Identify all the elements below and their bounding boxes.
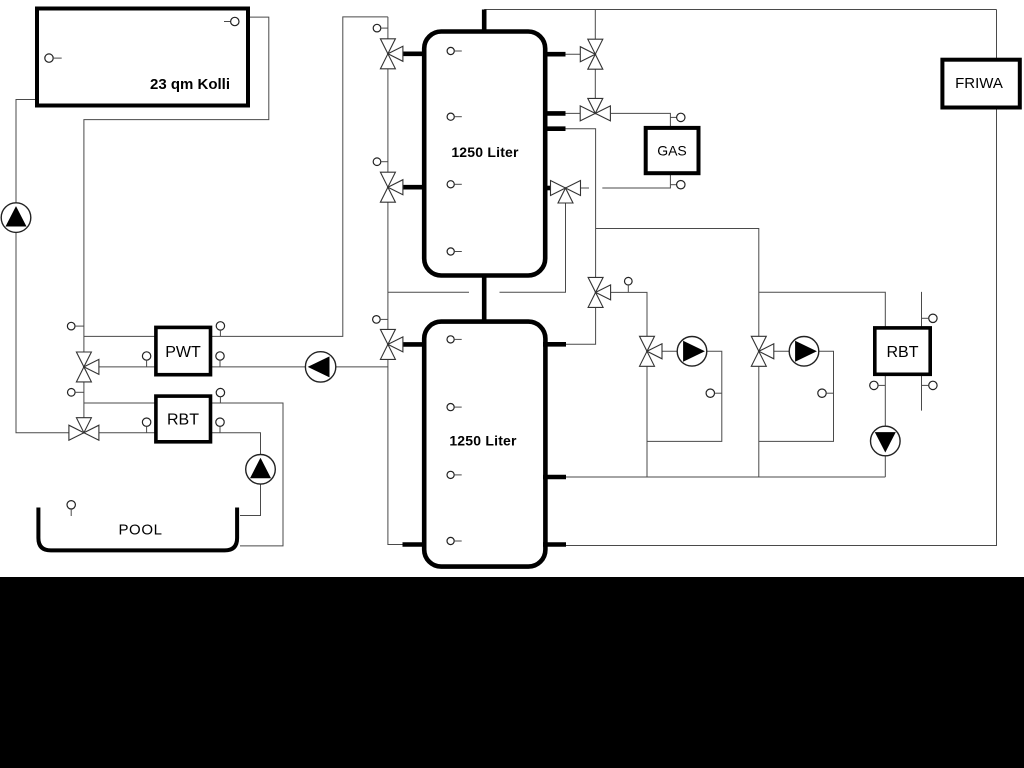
svg-text:PWT: PWT <box>165 344 201 361</box>
svg-text:1250 Liter: 1250 Liter <box>451 144 519 160</box>
svg-text:23 qm Kolli: 23 qm Kolli <box>150 76 230 93</box>
svg-text:RBT: RBT <box>887 344 919 361</box>
svg-text:POOL: POOL <box>118 522 162 539</box>
svg-text:1250 Liter: 1250 Liter <box>449 433 517 449</box>
svg-text:RBT: RBT <box>167 412 199 429</box>
svg-text:GAS: GAS <box>657 143 687 159</box>
svg-text:FRIWA: FRIWA <box>955 75 1003 92</box>
